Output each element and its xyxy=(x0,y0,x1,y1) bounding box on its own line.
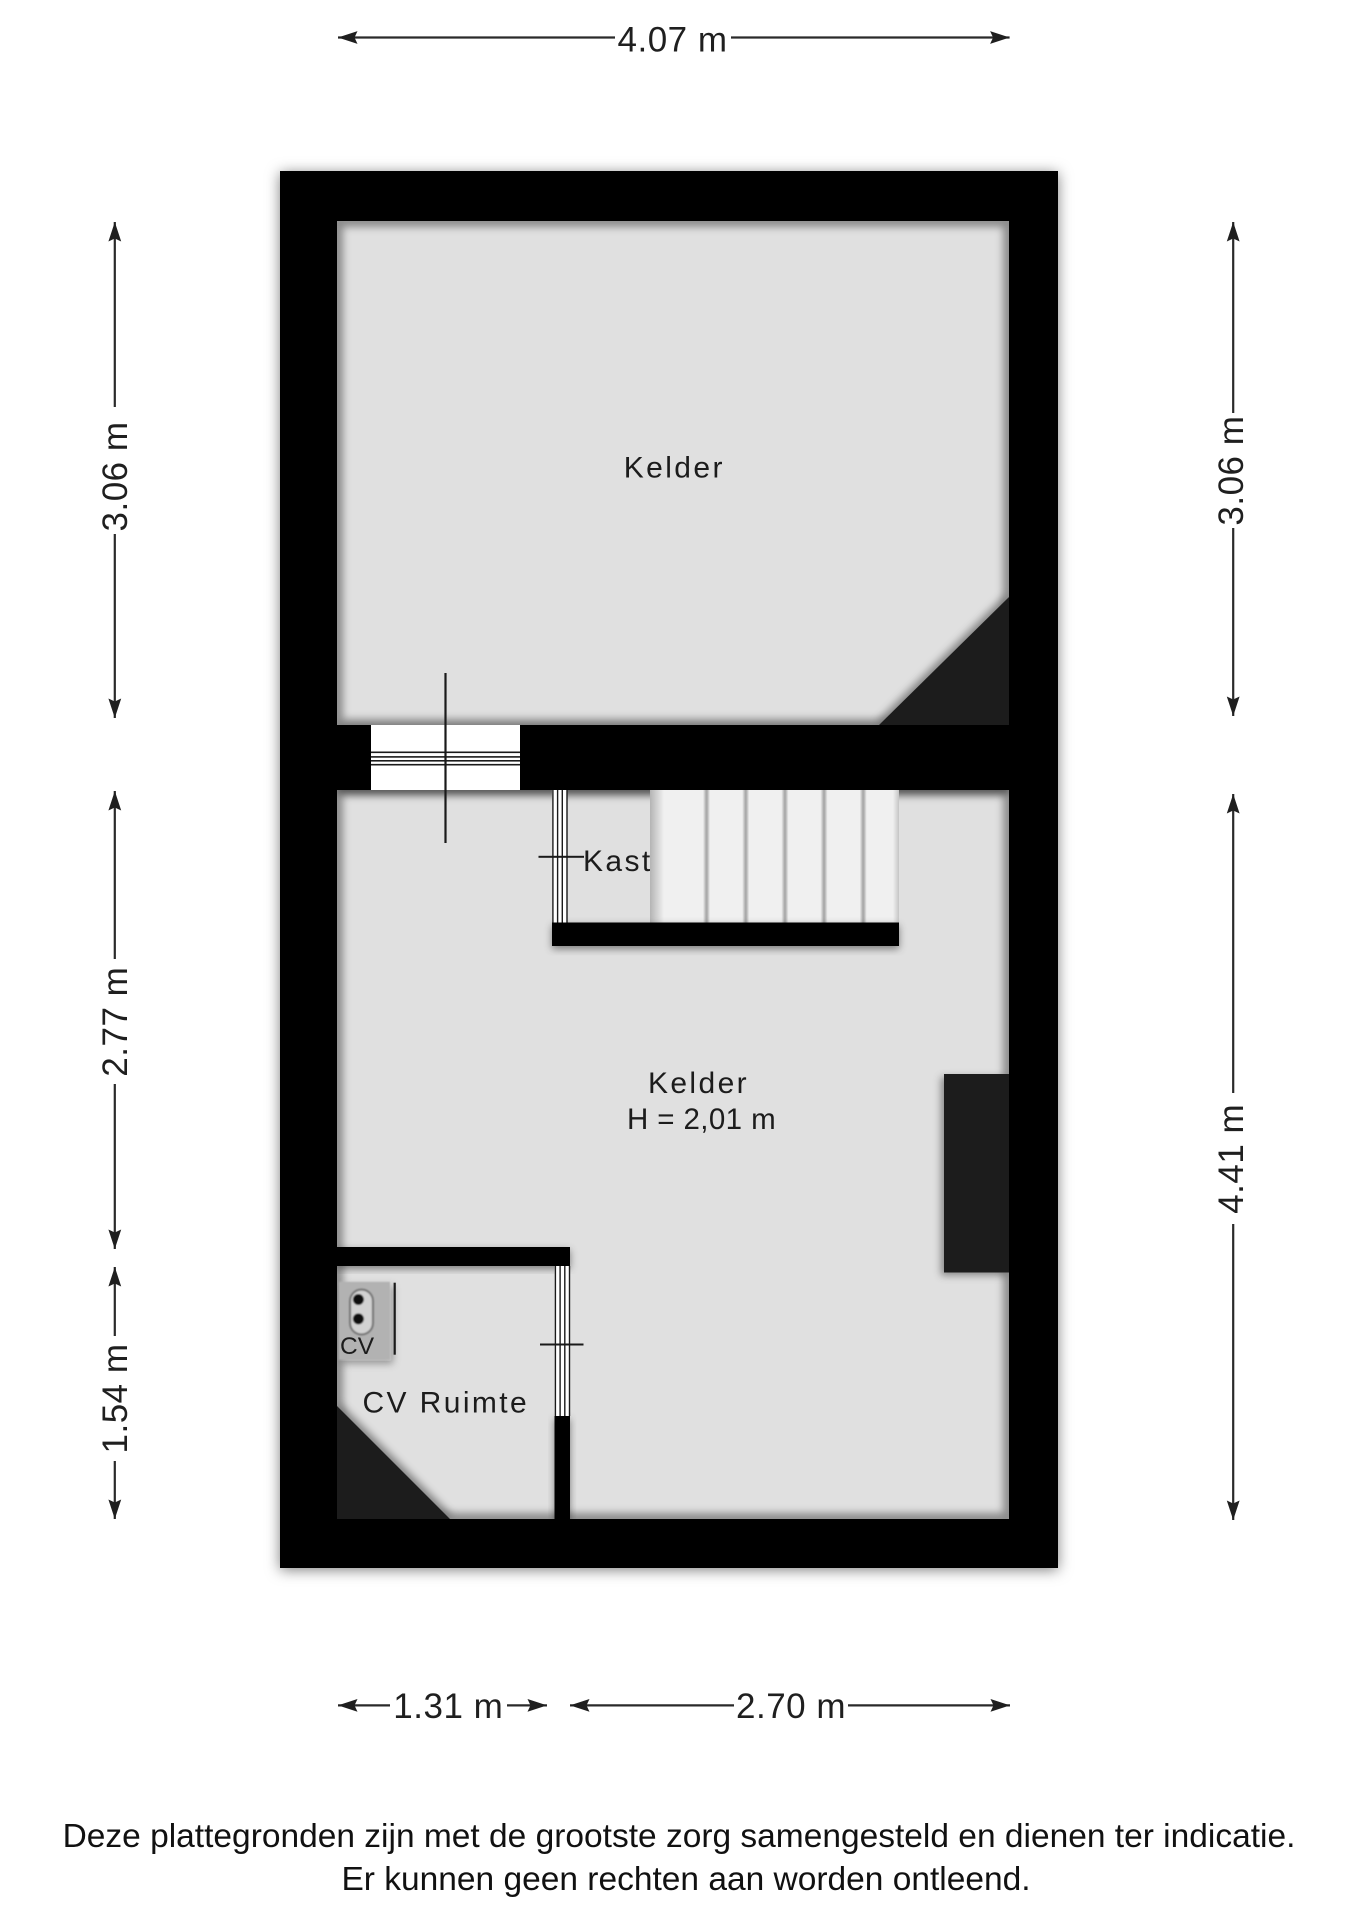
svg-text:Deze plattegronden zijn met de: Deze plattegronden zijn met de grootste … xyxy=(63,1818,1296,1855)
svg-text:4.41 m: 4.41 m xyxy=(1212,1104,1251,1214)
svg-text:Er kunnen geen rechten aan wor: Er kunnen geen rechten aan worden ontlee… xyxy=(341,1861,1030,1898)
svg-text:3.06 m: 3.06 m xyxy=(96,422,135,532)
svg-text:1.31 m: 1.31 m xyxy=(393,1687,503,1726)
svg-text:2.77 m: 2.77 m xyxy=(96,967,135,1077)
svg-text:4.07 m: 4.07 m xyxy=(618,21,728,60)
svg-text:1.54 m: 1.54 m xyxy=(96,1344,135,1454)
svg-text:Kast: Kast xyxy=(583,845,653,878)
svg-text:Kelder: Kelder xyxy=(648,1067,749,1100)
svg-text:3.06 m: 3.06 m xyxy=(1212,416,1251,526)
svg-text:2.70 m: 2.70 m xyxy=(736,1687,846,1726)
svg-text:Kelder: Kelder xyxy=(624,452,725,485)
svg-text:H = 2,01 m: H = 2,01 m xyxy=(627,1103,776,1136)
svg-text:CV: CV xyxy=(340,1333,375,1360)
svg-text:CV Ruimte: CV Ruimte xyxy=(362,1387,529,1420)
